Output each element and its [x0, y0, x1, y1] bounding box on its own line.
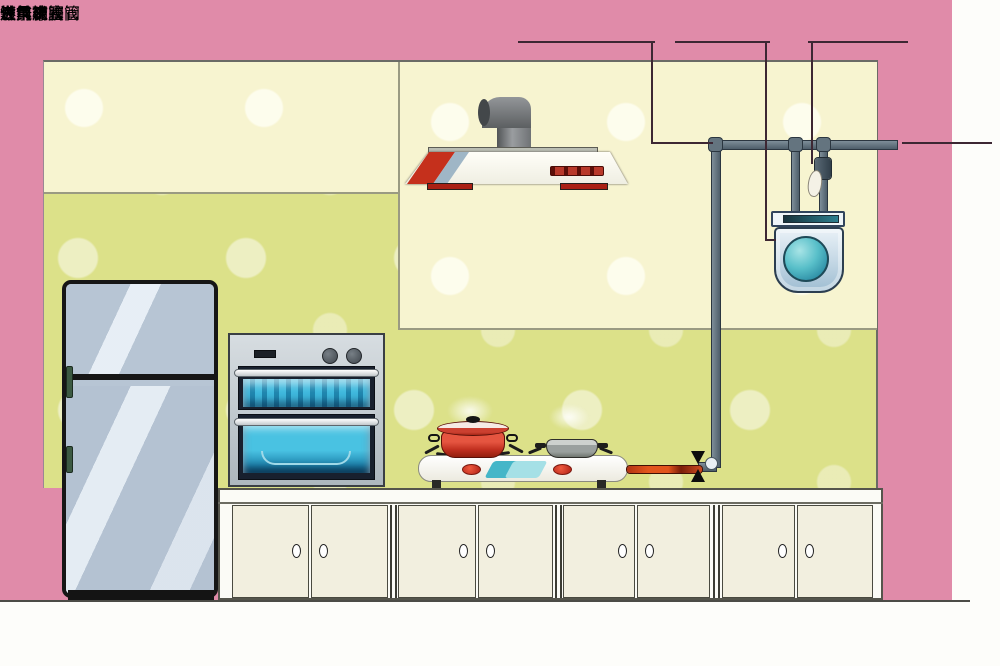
refrigerator-main-door	[66, 386, 214, 598]
right-white-margin	[952, 0, 1000, 666]
cabinet-door	[311, 505, 388, 598]
range-hood-vent	[560, 183, 608, 190]
range-hood-duct-opening	[478, 99, 490, 126]
leader-line	[518, 41, 655, 43]
cabinet-door	[232, 505, 309, 598]
oven-upper-glass	[243, 379, 370, 407]
leader-line	[765, 42, 767, 240]
pan-handle	[535, 443, 546, 448]
leader-line	[675, 41, 770, 43]
oven-knob	[322, 348, 338, 364]
cabinet-door	[478, 505, 553, 598]
cabinet-door	[722, 505, 795, 598]
kitchen-gas-installation-diagram: 镀锌钢管 燃气表 表前球阀 进气 灶具 专用橡胶管 灶前旋塞阀	[0, 0, 1000, 666]
refrigerator-base	[68, 590, 214, 600]
pan-handle	[597, 443, 608, 448]
range-hood-control-buttons	[550, 166, 604, 176]
gas-meter-dial	[783, 236, 829, 282]
floor-line	[0, 600, 970, 602]
cabinet-door	[637, 505, 710, 598]
stove-foot	[432, 480, 441, 488]
refrigerator-freezer-door	[66, 284, 214, 380]
wall-upper-left-cream	[44, 62, 398, 194]
meter-outlet-pipe	[792, 149, 799, 213]
leader-line	[765, 239, 776, 241]
refrigerator-handle-bottom	[66, 446, 73, 473]
cabinet-divider	[713, 505, 720, 598]
leader-line	[651, 42, 653, 143]
range-hood-vent	[427, 183, 473, 190]
gas-meter-display	[783, 215, 839, 223]
oven-display	[254, 350, 276, 358]
leader-line	[902, 142, 992, 144]
stove-burner-knob	[553, 464, 572, 475]
range-hood-shell	[405, 152, 628, 184]
pre-stove-plug-valve	[691, 469, 705, 482]
steam	[549, 404, 589, 430]
pot-handle	[506, 434, 518, 442]
oven-lower-glass	[243, 423, 370, 473]
oven-dish-silhouette	[261, 451, 351, 465]
cabinet-door	[797, 505, 873, 598]
pre-stove-plug-valve	[691, 451, 705, 464]
pot-handle	[428, 434, 440, 442]
refrigerator-handle-top	[66, 366, 73, 398]
cabinet-door	[563, 505, 635, 598]
leader-line	[808, 41, 908, 43]
refrigerator	[62, 280, 218, 598]
galvanized-steel-pipe-horizontal	[712, 141, 897, 149]
cabinet-door	[398, 505, 476, 598]
gray-pan	[546, 439, 598, 458]
oven-lower-handle	[234, 418, 379, 426]
oven-knob	[346, 348, 362, 364]
pot-lid-knob	[466, 416, 480, 423]
label-pre-stove-plug-valve: 灶前旋塞阀	[0, 0, 80, 24]
galvanized-steel-pipe-riser	[712, 141, 720, 467]
pipe-joint	[817, 138, 830, 151]
bottom-white-margin	[0, 602, 1000, 666]
pipe-elbow	[709, 138, 722, 151]
pipe-elbow-fitting	[705, 457, 718, 470]
oven-upper-handle	[234, 369, 379, 377]
cabinet-divider	[555, 505, 562, 598]
leader-line	[651, 142, 713, 144]
cabinet-divider	[390, 505, 397, 598]
range-hood-body	[405, 152, 628, 184]
counter-edge-line	[218, 502, 883, 504]
pipe-joint	[789, 138, 802, 151]
stove-foot	[597, 480, 606, 488]
stove-burner-knob	[462, 464, 481, 475]
pot-lid	[437, 421, 509, 436]
leader-line	[811, 42, 813, 164]
